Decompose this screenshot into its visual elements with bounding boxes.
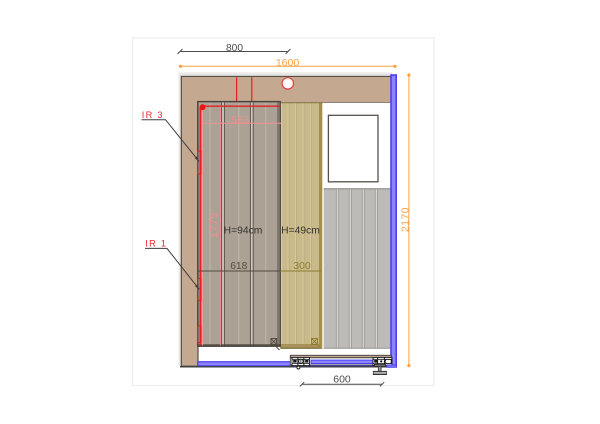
svg-text:618: 618 (230, 261, 247, 272)
svg-text:H=94cm: H=94cm (224, 226, 263, 237)
svg-text:300: 300 (293, 261, 310, 272)
svg-text:600: 600 (333, 374, 351, 386)
svg-text:583: 583 (231, 115, 250, 126)
svg-text:H=49cm: H=49cm (281, 226, 320, 237)
svg-text:1600: 1600 (276, 57, 300, 69)
svg-text:IR 1: IR 1 (145, 239, 167, 249)
svg-text:IR 3: IR 3 (142, 110, 164, 120)
svg-text:800: 800 (226, 43, 243, 54)
svg-text:2170: 2170 (400, 207, 411, 232)
svg-text:1779: 1779 (209, 212, 220, 238)
